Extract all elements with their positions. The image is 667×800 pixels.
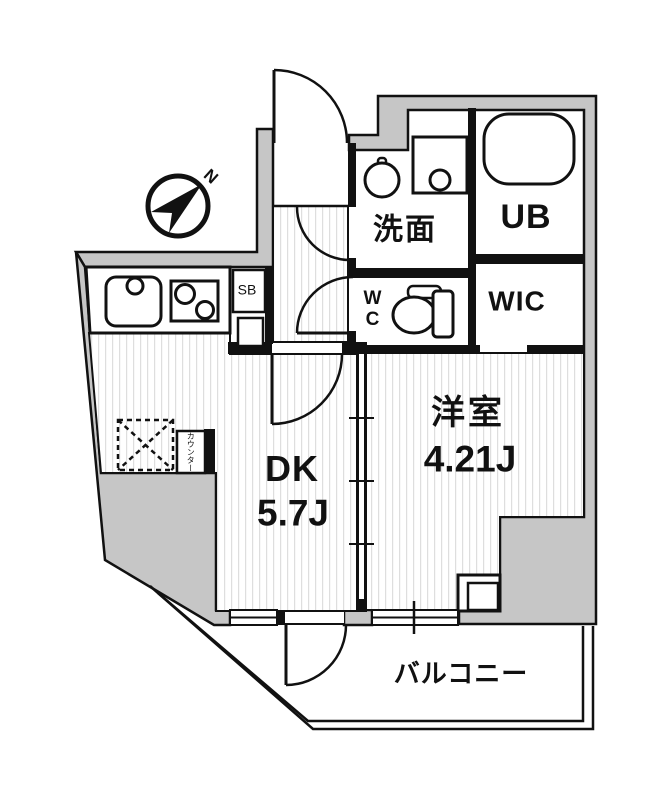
unit-bath-label: UB (500, 200, 551, 236)
wall-washroom-bottom (348, 258, 468, 278)
toilet-bowl (393, 297, 435, 333)
dk-size-label: 5.7J (257, 495, 329, 534)
toilet-tank (433, 291, 453, 337)
stove-burner-1 (176, 285, 195, 304)
washer-drain (430, 170, 450, 190)
entrance-door-arc (274, 70, 347, 143)
wall-ub-wic-divider (468, 254, 584, 264)
compass (148, 176, 208, 236)
floor-plan-drawing (0, 0, 667, 800)
dk-label: DK (265, 450, 319, 488)
wall-wc-bottom (352, 345, 480, 353)
balcony-doorway (285, 611, 344, 624)
wic-label: WIC (488, 286, 545, 315)
floor-plan: N 洗面 UB WIC W C SB DK 5.7J 洋室 4.21J バルコニ… (0, 0, 667, 800)
shoe-box-label: SB (238, 283, 257, 298)
washroom-basin (365, 163, 399, 197)
shoe-box-lower (238, 318, 263, 346)
pillar-outer (458, 575, 500, 611)
counter-label: カウンター (186, 432, 194, 472)
wall-genkan-right (348, 143, 356, 207)
western-room-size-label: 4.21J (424, 441, 517, 480)
wall-ub-wic-left (468, 108, 476, 345)
wc-label-w: W (364, 289, 383, 309)
western-room-label: 洋室 (431, 396, 505, 432)
wc-label-c: C (366, 310, 381, 330)
stove-burner-2 (197, 302, 214, 319)
washroom-label: 洗面 (373, 214, 437, 246)
faucet-icon (127, 278, 143, 294)
hall-floor (273, 206, 348, 342)
bathtub (484, 114, 574, 184)
wall-bottom-post (277, 610, 285, 625)
wall-wic-bottom-right (527, 345, 584, 353)
balcony-label: バルコニー (394, 660, 528, 687)
wall-bottom-mid (344, 610, 372, 625)
balcony-door-arc (286, 625, 346, 685)
